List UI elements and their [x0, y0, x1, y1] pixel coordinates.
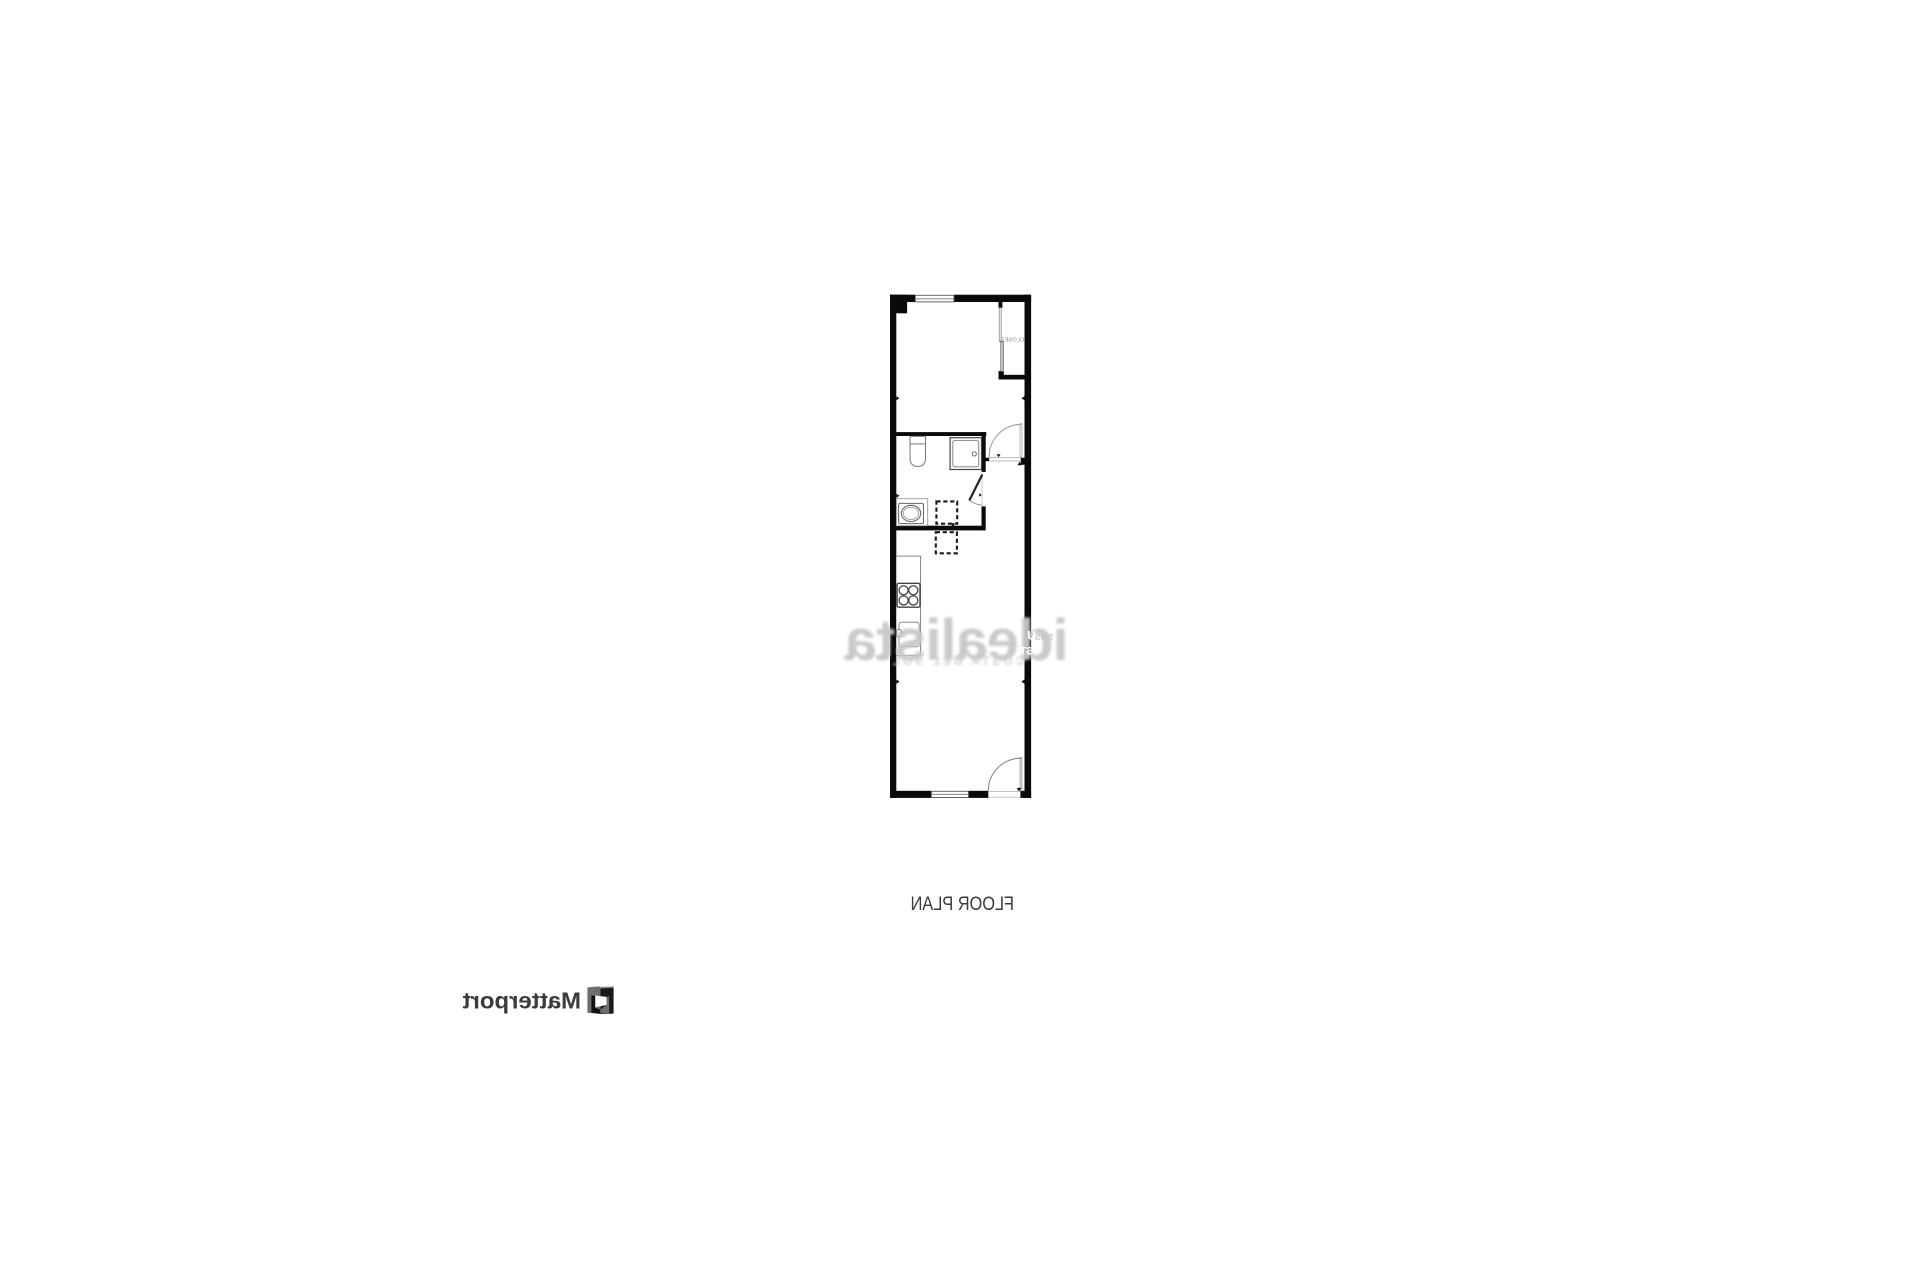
svg-text:FLOOR PLAN: FLOOR PLAN — [911, 893, 1014, 914]
svg-text:U: U — [1027, 629, 1036, 643]
svg-text:SUS: SUS — [1035, 632, 1054, 642]
svg-text:COSTA DEL SOL: COSTA DEL SOL — [890, 654, 1025, 668]
svg-text:Matterport: Matterport — [462, 989, 581, 1015]
svg-text:ST: ST — [1019, 646, 1033, 658]
svg-text:CLOSET: CLOSET — [1001, 338, 1024, 344]
